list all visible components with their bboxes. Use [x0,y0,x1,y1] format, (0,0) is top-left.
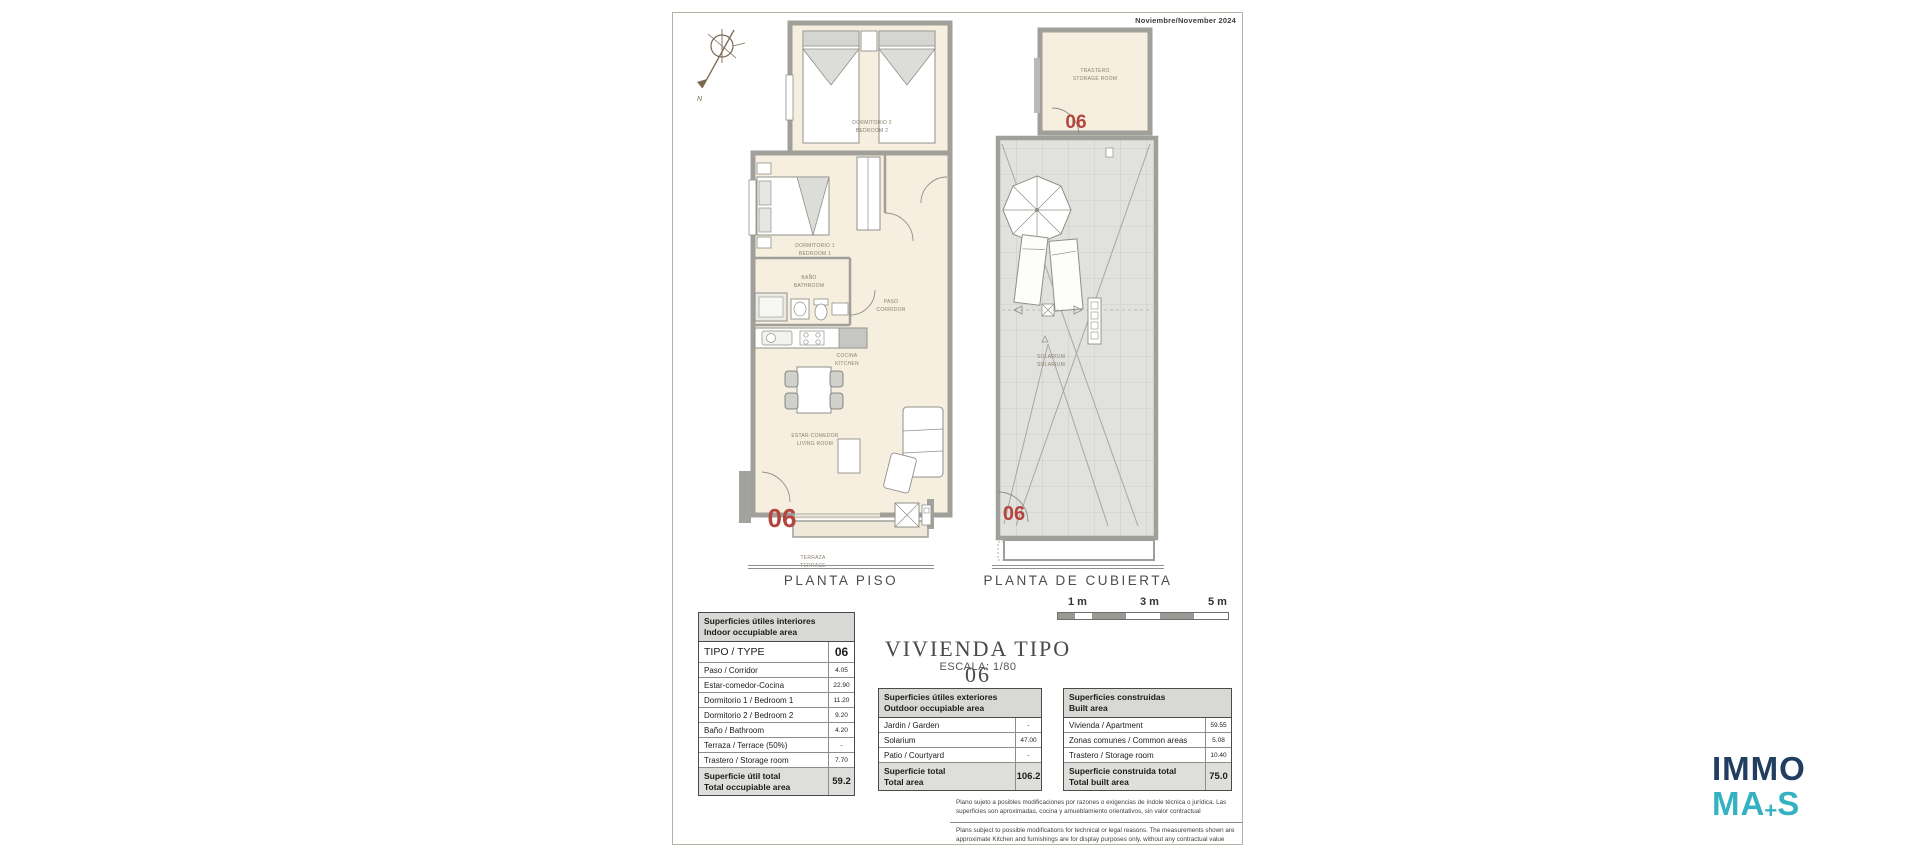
table-row: Vivienda / Apartment59.55 [1064,718,1231,733]
room-label: TERRAZA [800,555,826,561]
table-header: Superficies construidas Built area [1064,689,1231,718]
room-label: STORAGE ROOM [1073,76,1117,82]
room-label: BEDROOM 2 [856,128,888,134]
table-row: Baño / Bathroom4.20 [699,723,854,738]
table-total-row: Superficie total Total area 106.2 [879,763,1041,790]
unit-number: 06 [768,503,797,533]
scale-text: ESCALA: 1/80 [878,661,1078,673]
floor-plan-caption: PLANTA PISO [748,573,934,588]
scale-tick-label: 3 m [1140,596,1159,608]
disclaimer-divider [950,822,1243,823]
roof-marker [1106,148,1113,157]
wall-stub [1034,58,1040,113]
scale-tick-label: 5 m [1208,596,1227,608]
room-label: KITCHEN [835,361,859,367]
plan-sheet-page: Noviembre/November 2024 N [0,0,1920,860]
room-label: LIVING ROOM [797,441,833,447]
wardrobe [857,157,880,230]
unit-number: 06 [1003,503,1025,525]
scale-bar [1058,613,1228,619]
room-label: ESTAR-COMEDOR [791,433,838,439]
table-row: Dormitorio 2 / Bedroom 29.20 [699,708,854,723]
scale-tick-label: 1 m [1068,596,1087,608]
room-label: BAÑO [801,274,816,281]
table-header: Superficies útiles exteriores Outdoor oc… [879,689,1041,718]
shower [755,293,787,321]
caption-rule [992,565,1164,569]
hob [800,331,824,345]
wall-stub [739,471,751,523]
logo-plus-icon: + [1764,800,1778,822]
table-row: Dormitorio 1 / Bedroom 111.20 [699,693,854,708]
floor-plan-drawing: 06 DORMITORIO 2 BEDROOM 2 DORMITORIO 1 B… [735,15,965,575]
parapet-band [1004,540,1154,560]
table-row: Estar-comedor-Cocina22.90 [699,678,854,693]
immo-mas-logo: IMMO MA + S [1712,752,1852,820]
toilet [814,299,828,320]
disclaimer-es: Plano sujeto a posibles modificaciones p… [956,799,1240,817]
roof-plan-drawing: 06 TRASTERO STORAGE ROOM [990,18,1170,566]
room-label: COCINA [837,353,858,359]
roof-plan-caption: PLANTA DE CUBIERTA [970,573,1186,588]
room-label: PASO [884,299,899,305]
table-row: Paso / Corridor4.05 [699,663,854,678]
table-row: Zonas comunes / Common areas5.08 [1064,733,1231,748]
kitchen-counter [755,328,867,348]
room-label: SOLARIUM [1037,362,1065,368]
table-row: Terraza / Terrace (50%)- [699,738,854,753]
room-label: CORRIDOR [876,307,905,313]
table-header: Superficies útiles interiores Indoor occ… [699,613,854,642]
bathroom-cabinet [832,303,848,315]
nightstand [861,31,877,51]
fridge [839,328,867,348]
room-label: DORMITORIO 2 [852,120,892,126]
nightstand [757,163,771,174]
single-bed [803,31,859,143]
built-areas-table: Superficies construidas Built area Vivie… [1063,688,1232,791]
room-label: DORMITORIO 1 [795,243,835,249]
exterior-areas-table: Superficies útiles exteriores Outdoor oc… [878,688,1042,791]
washbasin [791,299,809,319]
table-row: Trastero / Storage room10.40 [1064,748,1231,763]
table-row: Trastero / Storage room7.70 [699,753,854,768]
unit-number: 06 [1065,112,1086,133]
logo-line-immo: IMMO [1712,752,1852,785]
nightstand [757,237,771,248]
caption-rule [748,565,934,569]
sun-lounger [1049,239,1083,311]
table-total-row: Superficie útil total Total occupiable a… [699,768,854,795]
north-label: N [697,96,703,103]
double-bed [757,177,829,235]
room-label: BATHROOM [794,283,825,289]
tv-cabinet [838,439,860,473]
parasol [1003,176,1071,244]
logo-line-mas: MA + S [1712,787,1852,820]
table-row: Jardin / Garden- [879,718,1041,733]
vent-grille [1088,298,1101,344]
room-label: TRASTERO [1080,68,1109,74]
table-row: TIPO / TYPE 06 [699,642,854,663]
room-label: SOLARIUM [1037,354,1065,360]
disclaimer-en: Plans subject to possible modifications … [956,827,1240,845]
room-label: BEDROOM 1 [799,251,831,257]
table-row: Patio / Courtyard- [879,748,1041,763]
ac-unit [895,503,931,527]
table-row: Solarium47.00 [879,733,1041,748]
table-total-row: Superficie construida total Total built … [1064,763,1231,790]
single-bed [879,31,935,143]
interior-areas-table: Superficies útiles interiores Indoor occ… [698,612,855,796]
